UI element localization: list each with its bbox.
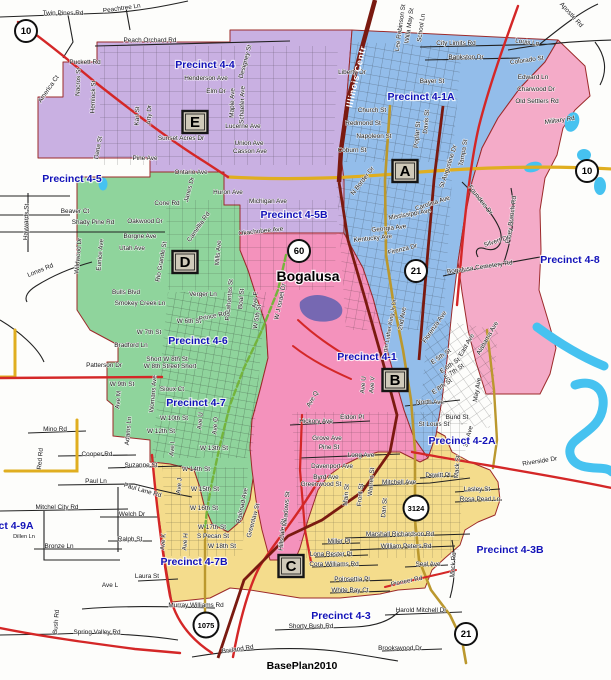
shield-number: 1075 (198, 621, 215, 630)
red-road-west (0, 377, 162, 378)
street-label: Arty Dr (146, 104, 154, 125)
street-label: Dewitt Pl (425, 472, 450, 479)
street-label: Greenwood St (301, 481, 342, 488)
street-label: Sioux Ct (160, 386, 184, 393)
shield-number: 3124 (408, 504, 426, 513)
bogalusa-precinct-map: Twin Pines RdPeachtree LnPeach Orchard R… (0, 0, 611, 680)
map-canvas: Twin Pines RdPeachtree LnPeach Orchard R… (0, 0, 611, 680)
street-label: Shorty Bush Rd (289, 623, 334, 630)
street-label: Haywards St (22, 204, 30, 241)
street-label: Bradford Ln (114, 342, 148, 349)
street-label: William Peters Rd (381, 543, 432, 550)
street-label: Suzanne St (124, 462, 157, 469)
street-label: Paul Ln (85, 478, 107, 485)
street-label: Bund St (446, 414, 469, 421)
street-label: Casson Ave (233, 148, 267, 155)
street-label: Twin Pines Rd (43, 10, 84, 17)
street-label: Mino Rd (43, 426, 67, 433)
street-label: Pine Ave (132, 155, 158, 162)
street-label: W 18th St (208, 543, 236, 550)
street-label: Old Settlers Rd (515, 98, 559, 105)
street-label: Puckett Rd (69, 59, 101, 66)
street-label: Ave I (168, 441, 176, 456)
pond (594, 177, 606, 195)
letter-marker-E: E (183, 111, 208, 133)
street-label: Welch Dr (119, 511, 146, 518)
highway-shield: 10 (15, 20, 37, 42)
precinct-label: Precinct 4-3B (476, 544, 544, 556)
street-label: Smokey Creek Ln (115, 300, 166, 307)
street-label: Seal Ave (415, 561, 441, 568)
street-label: Nacros St (75, 68, 83, 97)
street-label: Breland Rd (221, 644, 254, 655)
street-label: W 15th St (191, 486, 219, 493)
precinct-label: Precinct 4-6 (168, 335, 228, 347)
baseplan-label: BasePlan2010 (267, 660, 338, 672)
street-label: Peachtree Ln (102, 2, 141, 14)
marker-letter: C (286, 558, 297, 575)
letter-marker-C: C (279, 555, 304, 577)
street-label: Sunset Acres Dr (158, 135, 205, 142)
precinct-label: Precinct 4-4 (175, 59, 235, 71)
street-label: Dillen Ln (13, 534, 35, 540)
street-label: Ave J (175, 478, 183, 494)
street-label: Napoleon St (356, 133, 391, 140)
marker-letter: D (180, 254, 191, 271)
precinct-label: Precinct 4-1A (387, 91, 455, 103)
street-label: Short W 8th St (146, 356, 188, 363)
street-label: Peach Orchard Rd (124, 37, 177, 44)
street-label: Laura St (135, 573, 159, 580)
street-label: Eldon Pl (340, 414, 364, 421)
street-label: Byrd Ave (313, 474, 339, 481)
street-label: Mitchell Ave (382, 479, 416, 486)
highway-shield: 21 (405, 260, 427, 282)
street-label: Long Ave (348, 452, 375, 459)
precinct-label: Precinct 4-9A (0, 520, 34, 532)
highway-shield: 10 (576, 160, 598, 182)
street-label: W 8th Street Short (144, 363, 197, 370)
street-label: W 7th St (137, 329, 162, 336)
street-label: Ontario Ave (174, 169, 208, 176)
precinct-label: Precinct 4-1 (337, 351, 397, 363)
street-label: Red Rd (36, 447, 45, 470)
street-label: Hemlock St (89, 80, 97, 113)
highway-shield: 60 (288, 240, 310, 262)
street-label: Harold Mitchell Dr (396, 607, 448, 614)
street-label: S Pecan St (197, 533, 229, 540)
street-label: Apostle Rd (558, 1, 584, 29)
street-label: Poinsettia Pl (334, 576, 370, 583)
street-label: Brookswood Dr (378, 645, 423, 652)
street-label: Grove Ave (312, 435, 342, 442)
street-label: Union Ave (234, 140, 263, 147)
precinct-label: Precinct 4-7 (166, 397, 226, 409)
street-label: W 13th St (200, 445, 228, 452)
street-label: Borgne Ave (124, 233, 157, 240)
street-label: Schaefer Ave (238, 85, 246, 124)
marker-letter: A (400, 163, 411, 180)
letter-marker-B: B (383, 369, 408, 391)
street-label: Spring Valley Rd (73, 629, 121, 636)
street-label: Michigan Ave (249, 198, 287, 205)
street-label: Lones Rd (26, 262, 54, 279)
street-label: W 9th St (110, 381, 135, 388)
street-label: Coburn St (338, 147, 367, 154)
street-label: Adams Ln (124, 416, 134, 446)
street-label: Mitchel City Rd (36, 504, 79, 511)
street-label: Maple Ave (228, 88, 236, 118)
street-label: Bush Rd (52, 609, 61, 634)
street-label: St Louis St (419, 421, 450, 428)
street-label: Lasley St (464, 486, 491, 493)
street-label: Ralph St (118, 536, 143, 543)
highway-shield: 3124 (404, 496, 429, 521)
street-label: Shady Pine Rd (72, 219, 115, 226)
street-label: Charwood Dr (517, 86, 556, 93)
street-label: Ave L (102, 582, 119, 589)
shield-number: 21 (461, 629, 472, 640)
street-label: W 6th St (177, 318, 202, 325)
street-label: Bayer St (420, 78, 445, 85)
street-label: Henderson Ave (184, 75, 228, 82)
street-label: White Bay Ct (331, 587, 369, 594)
street-label: Bankston Dr (448, 54, 484, 61)
street-label: Beaver Ct (61, 208, 90, 215)
marker-letter: B (390, 372, 401, 389)
street-label: Karl St (134, 106, 142, 126)
shield-number: 21 (411, 266, 422, 277)
street-label: Marshall Richardson Rd (366, 531, 435, 538)
street-label: Verger Ln (189, 291, 217, 298)
precinct-label: Precinct 4-3 (311, 610, 371, 622)
precinct-label: Precinct 4-7B (160, 556, 228, 568)
street-label: Miller Pl (328, 538, 351, 545)
street-label: City Limits Rd (436, 40, 476, 47)
street-label: W 10th St (160, 415, 188, 422)
shield-number: 60 (294, 246, 305, 257)
precinct-label: Precinct 4-5B (260, 209, 328, 221)
precinct-label: Precinct 4-8 (540, 254, 600, 266)
street-label: Hickory Ave (299, 418, 333, 425)
precinct-label: Precinct 4-2A (428, 435, 496, 447)
highway-shield: 1075 (194, 613, 219, 638)
street-label: Huron Ave (213, 189, 243, 196)
street-label: Davenport Ave (311, 463, 353, 470)
street-label: Cora Williams Rd (309, 561, 359, 568)
shield-number: 10 (582, 166, 593, 177)
street-label: Pine St (319, 444, 340, 451)
street-label: Bronze Ln (44, 543, 74, 550)
city-label: Bogalusa (276, 268, 339, 284)
street-label: W 16th St (190, 505, 218, 512)
street-label: Oakwood Dr (127, 218, 163, 225)
street-label: Utah Ave (119, 245, 145, 252)
street-label: W 12th St (147, 428, 175, 435)
street-label: Redmond St (345, 120, 381, 127)
street-label: Riverside Dr (522, 455, 559, 468)
street-label: Cooper Rd (82, 451, 113, 458)
highway-shield: 21 (455, 623, 477, 645)
letter-marker-D: D (173, 251, 198, 273)
street-label: Murray Williams Rd (168, 602, 224, 609)
street-label: Bulls Blvd (112, 289, 141, 296)
shield-number: 10 (21, 26, 32, 37)
street-label: Patterson Dr (86, 362, 123, 369)
letter-marker-A: A (393, 160, 418, 182)
street-label: W 17th St (198, 524, 226, 531)
street-label: Cone Rd (154, 200, 180, 207)
street-label: Edward Ln (518, 74, 549, 81)
street-label: Lona Rester Pl (310, 551, 352, 558)
street-label: W 14th St (182, 466, 210, 473)
marker-letter: E (190, 114, 200, 131)
street-label: North Ave (416, 399, 444, 406)
street-label: Lucerne Ave (225, 123, 261, 130)
street-label: Mock Rd (449, 552, 458, 578)
street-label: Church St (358, 107, 387, 114)
street-label: Elm Dr (206, 88, 226, 95)
street-label: Rosa Pearl Ln (460, 496, 501, 503)
precinct-label: Precinct 4-5 (42, 173, 102, 185)
